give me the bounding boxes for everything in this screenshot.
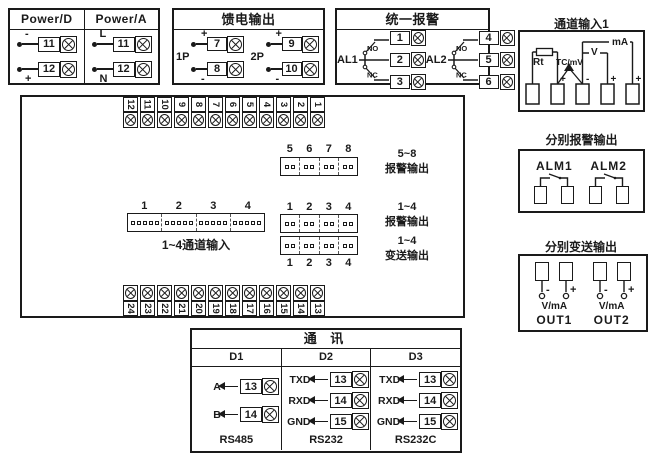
unit-label: V/mA xyxy=(542,301,568,312)
no-label: NO xyxy=(367,44,378,53)
comm-protocol-label: RS232 xyxy=(282,434,371,450)
terminal-number: 24 xyxy=(126,303,135,314)
connector-pin xyxy=(343,165,347,169)
alm-label: ALM2 xyxy=(590,159,627,173)
strip-terminal: 21 xyxy=(174,285,189,316)
screw-terminal-icon xyxy=(276,112,291,128)
arrow-left-icon xyxy=(402,379,417,381)
connector-pin xyxy=(233,221,237,225)
terminal-square xyxy=(593,262,607,281)
ma-label: mA xyxy=(612,37,628,48)
screw-terminal-icon xyxy=(259,112,274,128)
screw-terminal-icon xyxy=(276,285,291,301)
strip-terminal: 24 xyxy=(123,285,138,316)
connector-pin xyxy=(137,221,141,225)
alm-label: ALM1 xyxy=(536,159,573,173)
out-label: OUT2 xyxy=(594,313,630,327)
screw-terminal-icon xyxy=(500,52,515,68)
terminal-number: 5 xyxy=(479,53,499,67)
signal-label: B xyxy=(194,409,221,421)
connector-pin xyxy=(291,222,295,226)
terminal-number: 18 xyxy=(228,303,237,314)
comm-column-d1: D1 A 13 B 14 RS485 xyxy=(192,349,282,450)
screw-terminal-icon xyxy=(191,285,206,301)
comm-title: 通 讯 xyxy=(192,330,460,349)
feed-row-9: + 9 xyxy=(266,33,324,55)
screw-terminal-icon xyxy=(191,112,206,128)
terminal-number: 10 xyxy=(160,99,169,110)
screw-terminal-icon xyxy=(441,413,458,430)
terminal-number: 17 xyxy=(245,303,254,314)
terminal-number: 12 xyxy=(126,99,135,110)
connector-pin xyxy=(343,244,347,248)
terminal-number: 15 xyxy=(330,414,352,429)
arrow-left-icon xyxy=(223,386,238,388)
relay-contact-diagram: NO NC xyxy=(359,33,389,87)
relay-label: AL1 xyxy=(337,54,358,66)
comm-column-header: D2 xyxy=(282,349,371,367)
terminal-number: 4 xyxy=(262,102,271,107)
screw-terminal-icon xyxy=(157,112,172,128)
strip-terminal: 20 xyxy=(191,285,206,316)
strip-terminal: 22 xyxy=(157,285,172,316)
terminal-number: 1 xyxy=(313,102,322,107)
screw-terminal-icon xyxy=(293,285,308,301)
terminal-number: 20 xyxy=(194,303,203,314)
rt-label: Rt xyxy=(533,57,544,68)
terminal-square xyxy=(561,186,574,204)
comm-row: GND 15 xyxy=(284,413,369,430)
connector-pin xyxy=(324,244,328,248)
terminal-number: 23 xyxy=(143,303,152,314)
unit-label: V/mA xyxy=(599,301,625,312)
strip-terminal: 19 xyxy=(208,285,223,316)
connector-pin xyxy=(245,221,249,225)
screw-terminal-icon xyxy=(140,112,155,128)
strip-terminal: 23 xyxy=(140,285,155,316)
terminal-square xyxy=(589,186,602,204)
feed-output-title: 馈电输出 xyxy=(174,10,323,30)
connector-pin xyxy=(183,221,187,225)
screw-terminal-icon xyxy=(302,61,319,78)
strip-terminal: 8 xyxy=(191,97,206,128)
power-box: Power/D - 11 + 12 Power/A xyxy=(8,8,160,85)
strip-terminal: 10 xyxy=(157,97,172,128)
signal-label: A xyxy=(194,381,221,393)
relay-label: AL2 xyxy=(426,54,447,66)
feed-group-label: 2P xyxy=(251,51,264,63)
polarity-sign: - xyxy=(604,284,608,296)
channel-input-wiring-diagram: Rt TC/mV V mA + - + + xyxy=(520,32,643,110)
trans-output-title: 分别变送输出 xyxy=(512,238,650,255)
terminal-number: 1 xyxy=(390,31,410,45)
connector-pin xyxy=(310,165,314,169)
alarm-terminal-row: 3 xyxy=(390,74,426,90)
connector-pin xyxy=(217,221,221,225)
channel-input-box: Rt TC/mV V mA + - + + xyxy=(518,30,645,112)
terminal-number: 8 xyxy=(207,62,227,76)
connector-pin xyxy=(349,165,353,169)
comm-row: RXD 14 xyxy=(373,392,458,409)
terminal-number: 22 xyxy=(160,303,169,314)
arrow-left-icon xyxy=(223,414,238,416)
connector-pin xyxy=(330,244,334,248)
output-wires-icon: - + xyxy=(531,281,577,303)
connector-pin xyxy=(304,222,308,226)
strip-terminal: 16 xyxy=(259,285,274,316)
output-wires-icon: - + xyxy=(589,281,635,303)
connector-pin xyxy=(251,221,255,225)
connector-pin xyxy=(285,244,289,248)
connector-pin xyxy=(171,221,175,225)
polarity-sign: + xyxy=(570,284,576,296)
relay-contact-diagram: NO NC xyxy=(448,33,478,87)
alarm-terminal-row: 4 xyxy=(479,30,515,46)
wire xyxy=(196,43,207,45)
signal-label: TXD xyxy=(284,374,311,386)
screw-terminal-icon xyxy=(441,392,458,409)
polarity-sign: - xyxy=(276,74,280,84)
terminal-number: 9 xyxy=(177,102,186,107)
comm-row: RXD 14 xyxy=(284,392,369,409)
trans14-connector xyxy=(280,236,358,255)
screw-terminal-icon xyxy=(208,112,223,128)
power-a-row-11: L 11 xyxy=(92,33,159,55)
switch-contact-icon xyxy=(589,173,629,186)
signal-label: RXD xyxy=(373,395,400,407)
screw-terminal-icon xyxy=(227,61,244,78)
terminal-number: 4 xyxy=(479,31,499,45)
connector-pin xyxy=(330,222,334,226)
terminal-number: 14 xyxy=(419,393,441,408)
comm-row: TXD 13 xyxy=(373,371,458,388)
terminal-number: 3 xyxy=(390,75,410,89)
terminal-number: 2 xyxy=(296,102,305,107)
alarm58-label: 5~8 报警输出 xyxy=(374,147,440,177)
connector-pin xyxy=(199,221,203,225)
strip-terminal: 13 xyxy=(310,285,325,316)
alarm58-connector xyxy=(280,157,358,176)
comm-protocol-label: RS485 xyxy=(192,434,281,450)
terminal-number: 5 xyxy=(245,102,254,107)
trans14-pin-labels: 1234 xyxy=(280,257,358,269)
feed-output-box: 馈电输出 1P + 7 - 8 2P + 9 xyxy=(172,8,325,85)
terminal-square xyxy=(616,186,629,204)
terminal-number: 11 xyxy=(113,37,135,52)
screw-terminal-icon xyxy=(225,112,240,128)
terminal-number: 15 xyxy=(279,303,288,314)
alarm14-pin-labels: 1234 xyxy=(280,201,358,213)
connector-pin xyxy=(205,221,209,225)
terminal-number: 14 xyxy=(330,393,352,408)
power-d-title: Power/D xyxy=(10,10,84,30)
terminal-number: 10 xyxy=(282,62,302,76)
comm-row: B 14 xyxy=(194,406,279,423)
connector-pin xyxy=(291,244,295,248)
arrow-left-icon xyxy=(313,421,328,423)
screw-terminal-icon xyxy=(208,285,223,301)
connector-pin xyxy=(143,221,147,225)
strip-terminal: 2 xyxy=(293,97,308,128)
alarm-terminal-row: 6 xyxy=(479,74,515,90)
terminal-number: 3 xyxy=(279,102,288,107)
connector-pin xyxy=(310,222,314,226)
arrow-left-icon xyxy=(402,421,417,423)
terminal-number: 21 xyxy=(177,303,186,314)
connector-pin xyxy=(285,165,289,169)
wire xyxy=(22,68,38,70)
strip-terminal: 9 xyxy=(174,97,189,128)
nc-label: NC xyxy=(456,71,467,80)
terminal-number: 13 xyxy=(330,372,352,387)
polarity-sign: - xyxy=(201,74,205,84)
comm-column-header: D1 xyxy=(192,349,281,367)
alarm-output-title: 分别报警输出 xyxy=(518,131,645,148)
screw-terminal-icon xyxy=(174,285,189,301)
connector-pin xyxy=(239,221,243,225)
screw-terminal-icon xyxy=(242,285,257,301)
terminal-number: 12 xyxy=(38,62,60,77)
strip-terminal: 17 xyxy=(242,285,257,316)
alarm58-pin-labels: 5678 xyxy=(280,143,358,155)
trans-output-box: - + V/mA OUT1 - + V/mA OUT2 xyxy=(518,254,648,332)
polarity-sign: + xyxy=(611,74,617,85)
strip-terminal: 7 xyxy=(208,97,223,128)
strip-terminal: 6 xyxy=(225,97,240,128)
power-a-title: Power/A xyxy=(85,10,159,30)
unified-alarm-title: 统一报警 xyxy=(337,10,488,30)
polarity-sign: + xyxy=(560,74,566,85)
channel-pin-labels: 1234 xyxy=(127,200,265,212)
polarity-sign: + xyxy=(636,74,642,85)
wire xyxy=(196,68,207,70)
terminal-number: 13 xyxy=(313,303,322,314)
strip-terminal: 11 xyxy=(140,97,155,128)
terminal-square xyxy=(534,186,547,204)
switch-contact-icon xyxy=(534,173,574,186)
comm-column-d2: D2 TXD 13 RXD 14 GND 15 xyxy=(282,349,372,450)
terminal-square xyxy=(559,262,573,281)
terminal-square xyxy=(535,262,549,281)
connector-pin xyxy=(149,221,153,225)
alm1-group: ALM1 xyxy=(534,159,574,204)
connector-pin xyxy=(343,222,347,226)
terminal-square xyxy=(617,262,631,281)
signal-label: RXD xyxy=(284,395,311,407)
terminal-number: 11 xyxy=(38,37,60,52)
signal-label: TXD xyxy=(373,374,400,386)
strip-terminal: 4 xyxy=(259,97,274,128)
polarity-sign: + xyxy=(628,284,634,296)
connector-pin xyxy=(349,244,353,248)
terminal-number: 9 xyxy=(282,37,302,51)
screw-terminal-icon xyxy=(242,112,257,128)
strip-terminal: 15 xyxy=(276,285,291,316)
screw-terminal-icon xyxy=(174,112,189,128)
screw-terminal-icon xyxy=(302,36,319,53)
terminal-number: 13 xyxy=(419,372,441,387)
connector-pin xyxy=(349,222,353,226)
no-label: NO xyxy=(456,44,467,53)
alarm-group-al1: AL1 NO NC 1 2 3 xyxy=(337,30,426,90)
arrow-left-icon xyxy=(402,400,417,402)
connector-pin xyxy=(189,221,193,225)
comm-row: TXD 13 xyxy=(284,371,369,388)
feed-row-8: - 8 xyxy=(191,58,249,80)
channel-connector xyxy=(127,213,265,232)
screw-terminal-icon xyxy=(140,285,155,301)
main-board-box: 12 11 10 9 8 7 6 5 4 3 2 1 24 23 22 21 2… xyxy=(20,95,465,318)
screw-terminal-icon xyxy=(352,413,369,430)
terminal-number: 14 xyxy=(296,303,305,314)
feed-row-7: + 7 xyxy=(191,33,249,55)
connector-pin xyxy=(257,221,261,225)
alarm-terminal-row: 2 xyxy=(390,52,426,68)
screw-terminal-icon xyxy=(310,112,325,128)
power-a-row-12: N 12 xyxy=(92,58,159,80)
connector-pin xyxy=(304,165,308,169)
screw-terminal-icon xyxy=(411,74,426,90)
channel-label: 1~4通道输入 xyxy=(127,236,265,253)
power-d-row-11: - 11 xyxy=(17,33,84,55)
terminal-number: 2 xyxy=(390,53,410,67)
strip-terminal: 5 xyxy=(242,97,257,128)
comm-column-d3: D3 TXD 13 RXD 14 GND 15 xyxy=(371,349,460,450)
power-a-column: Power/A L 11 N 12 xyxy=(85,10,159,83)
terminal-number: 6 xyxy=(228,102,237,107)
screw-terminal-icon xyxy=(500,74,515,90)
top-terminal-strip: 12 11 10 9 8 7 6 5 4 3 2 1 xyxy=(123,97,325,128)
terminal-number: 11 xyxy=(143,99,152,109)
out-label: OUT1 xyxy=(536,313,572,327)
feed-row-10: - 10 xyxy=(266,58,324,80)
wire xyxy=(271,43,282,45)
polarity-sign: - xyxy=(25,29,29,39)
polarity-sign: L xyxy=(100,29,107,39)
connector-pin xyxy=(291,165,295,169)
alarm-group-al2: AL2 NO NC 4 5 6 xyxy=(426,30,515,90)
terminal-number: 16 xyxy=(262,303,271,314)
terminal-number: 7 xyxy=(207,37,227,51)
screw-terminal-icon xyxy=(352,392,369,409)
arrow-left-icon xyxy=(313,379,328,381)
terminal-number: 13 xyxy=(240,379,262,394)
screw-terminal-icon xyxy=(411,52,426,68)
unified-alarm-box: 统一报警 AL1 NO NC 1 2 3 AL2 xyxy=(335,8,490,85)
alarm-output-box: ALM1 ALM2 xyxy=(518,149,645,213)
screw-terminal-icon xyxy=(123,285,138,301)
arrow-left-icon xyxy=(313,400,328,402)
out1-group: - + V/mA OUT1 xyxy=(531,262,577,327)
screw-terminal-icon xyxy=(500,30,515,46)
signal-label: GND xyxy=(284,416,311,428)
wire xyxy=(271,68,282,70)
wire xyxy=(22,43,38,45)
comm-protocol-label: RS232C xyxy=(371,434,460,450)
screw-terminal-icon xyxy=(293,112,308,128)
alarm14-label: 1~4 报警输出 xyxy=(374,200,440,230)
polarity-sign: N xyxy=(100,74,108,84)
connector-pin xyxy=(177,221,181,225)
feed-group-1p: 1P + 7 - 8 xyxy=(174,30,249,83)
strip-terminal: 18 xyxy=(225,285,240,316)
tc-label: TC/mV xyxy=(556,57,583,67)
polarity-sign: + xyxy=(201,29,207,39)
screw-terminal-icon xyxy=(441,371,458,388)
terminal-number: 6 xyxy=(479,75,499,89)
alarm-terminal-row: 1 xyxy=(390,30,426,46)
trans14-label: 1~4 变送输出 xyxy=(374,234,440,264)
wire xyxy=(97,68,113,70)
connector-pin xyxy=(310,244,314,248)
screw-terminal-icon xyxy=(262,406,279,423)
bottom-terminal-strip: 24 23 22 21 20 19 18 17 16 15 14 13 xyxy=(123,285,325,316)
terminal-number: 12 xyxy=(113,62,135,77)
polarity-sign: + xyxy=(25,74,31,84)
strip-terminal: 1 xyxy=(310,97,325,128)
power-d-row-12: + 12 xyxy=(17,58,84,80)
comm-column-header: D3 xyxy=(371,349,460,367)
signal-label: GND xyxy=(373,416,400,428)
alarm-terminal-row: 5 xyxy=(479,52,515,68)
screw-terminal-icon xyxy=(60,36,77,53)
power-d-column: Power/D - 11 + 12 xyxy=(10,10,85,83)
connector-pin xyxy=(155,221,159,225)
screw-terminal-icon xyxy=(60,61,77,78)
screw-terminal-icon xyxy=(225,285,240,301)
alarm14-connector xyxy=(280,214,358,233)
connector-pin xyxy=(211,221,215,225)
screw-terminal-icon xyxy=(259,285,274,301)
connector-pin xyxy=(285,222,289,226)
feed-group-2p: 2P + 9 - 10 xyxy=(249,30,324,83)
v-label: V xyxy=(591,47,598,58)
terminal-number: 14 xyxy=(240,407,262,422)
polarity-sign: + xyxy=(276,29,282,39)
connector-pin xyxy=(131,221,135,225)
terminal-number: 15 xyxy=(419,414,441,429)
screw-terminal-icon xyxy=(135,36,152,53)
polarity-sign: - xyxy=(546,284,550,296)
screw-terminal-icon xyxy=(352,371,369,388)
nc-label: NC xyxy=(367,71,378,80)
screw-terminal-icon xyxy=(310,285,325,301)
wire xyxy=(97,43,113,45)
screw-terminal-icon xyxy=(135,61,152,78)
connector-pin xyxy=(165,221,169,225)
terminal-number: 19 xyxy=(211,303,220,314)
comm-row: GND 15 xyxy=(373,413,458,430)
screw-terminal-icon xyxy=(411,30,426,46)
polarity-sign: - xyxy=(586,74,589,85)
comm-row: A 13 xyxy=(194,378,279,395)
screw-terminal-icon xyxy=(227,36,244,53)
strip-terminal: 3 xyxy=(276,97,291,128)
connector-pin xyxy=(304,244,308,248)
connector-pin xyxy=(223,221,227,225)
out2-group: - + V/mA OUT2 xyxy=(589,262,635,327)
screw-terminal-icon xyxy=(157,285,172,301)
strip-terminal: 14 xyxy=(293,285,308,316)
feed-group-label: 1P xyxy=(176,51,189,63)
strip-terminal: 12 xyxy=(123,97,138,128)
connector-pin xyxy=(324,222,328,226)
alm2-group: ALM2 xyxy=(589,159,629,204)
comm-box: 通 讯 D1 A 13 B 14 RS485 D2 xyxy=(190,328,462,453)
connector-pin xyxy=(330,165,334,169)
connector-pin xyxy=(324,165,328,169)
screw-terminal-icon xyxy=(123,112,138,128)
